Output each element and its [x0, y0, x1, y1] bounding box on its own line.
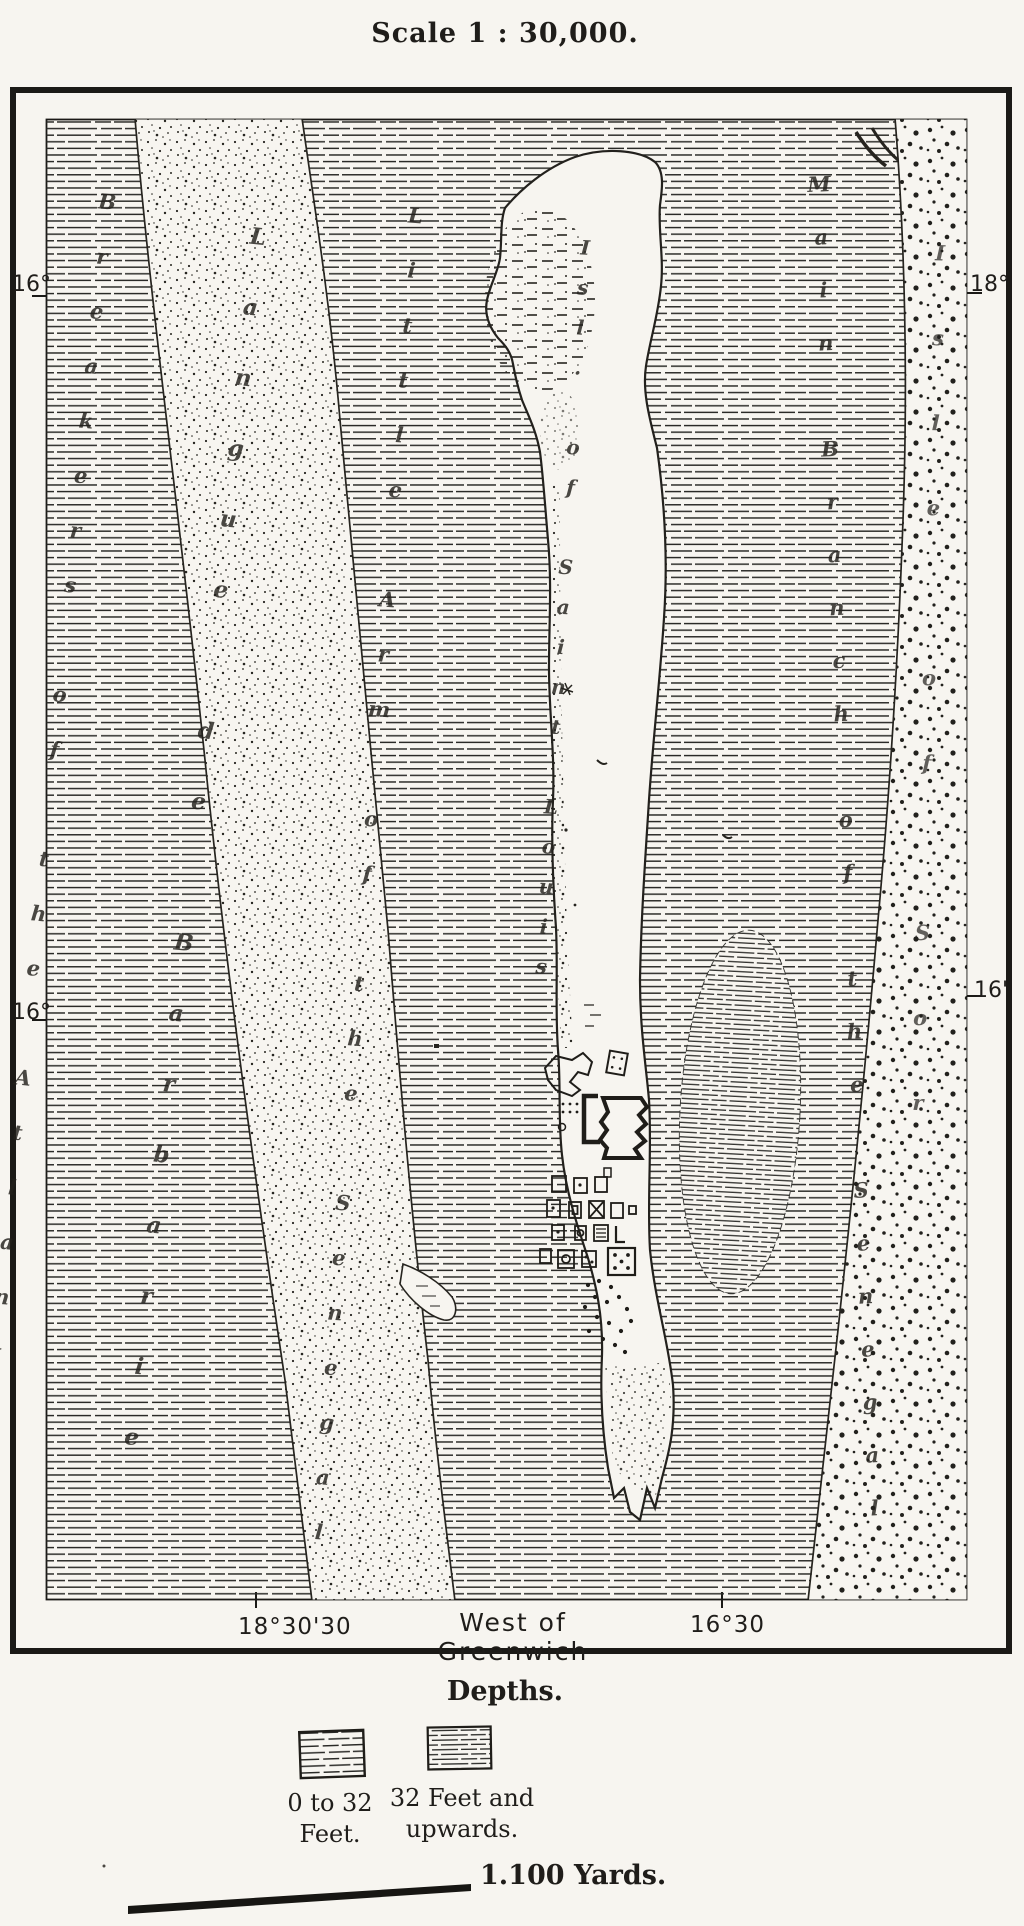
scale-title: Scale 1 : 30,000. — [0, 18, 1010, 49]
legend-item-label-line2: upwards. — [372, 1814, 552, 1845]
legend-item-32-feet-up: 32 Feet and upwards. — [372, 1783, 552, 1845]
legend-swatch-fine — [428, 1726, 492, 1769]
scale-bar-label: 1.100 Yards. — [480, 1860, 666, 1891]
latitude-label-left-bottom: 16° — [12, 1000, 51, 1025]
latitude-label-left-top: 16° — [12, 272, 51, 297]
longitude-label-bottom-left: 18°30'30 — [238, 1614, 352, 1640]
scale-bar-line — [128, 1884, 471, 1914]
latitude-label-right-bottom: 16' — [974, 978, 1008, 1003]
longitude-label-bottom-right: 16°30 — [690, 1612, 765, 1638]
legend-swatch-coarse — [299, 1730, 365, 1778]
legend-title: Depths. — [0, 1676, 1010, 1707]
west-of-greenwich-label: West of Greenwich — [388, 1608, 638, 1666]
latitude-label-right-top: 18° — [970, 272, 1009, 297]
scanned-map-page: { "page": { "scale_title": "Scale 1 : 30… — [0, 0, 1024, 1926]
legend-item-label-line1: 32 Feet and — [372, 1783, 552, 1814]
